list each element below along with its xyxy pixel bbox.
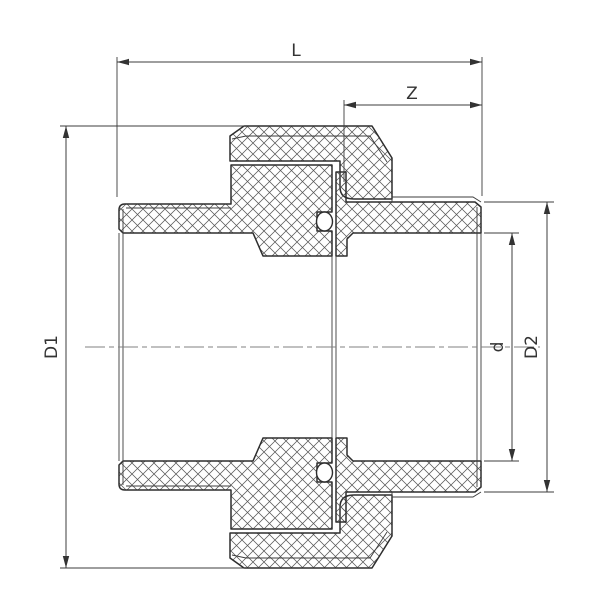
- fitting-upper-half: [119, 126, 481, 347]
- arrow-up-icon: [63, 126, 69, 138]
- arrow-left-icon: [344, 102, 356, 108]
- arrow-down-icon: [63, 556, 69, 568]
- arrow-down-icon: [544, 480, 550, 492]
- technical-drawing-union-fitting: L Z D1 D2 d: [0, 0, 600, 600]
- arrow-up-icon: [544, 202, 550, 214]
- dimension-label-d: d: [488, 342, 508, 353]
- dimension-label-L: L: [291, 41, 301, 61]
- arrow-down-icon: [509, 449, 515, 461]
- dimension-label-D2: D2: [522, 335, 542, 359]
- arrow-left-icon: [117, 59, 129, 65]
- arrow-right-icon: [470, 59, 482, 65]
- dimension-label-D1: D1: [42, 335, 62, 359]
- dimension-label-Z: Z: [406, 84, 418, 104]
- arrow-up-icon: [509, 233, 515, 245]
- fitting-lower-half: [119, 347, 481, 568]
- dimension-d: d: [484, 233, 519, 461]
- drawing-canvas: L Z D1 D2 d: [0, 0, 600, 600]
- arrow-right-icon: [470, 102, 482, 108]
